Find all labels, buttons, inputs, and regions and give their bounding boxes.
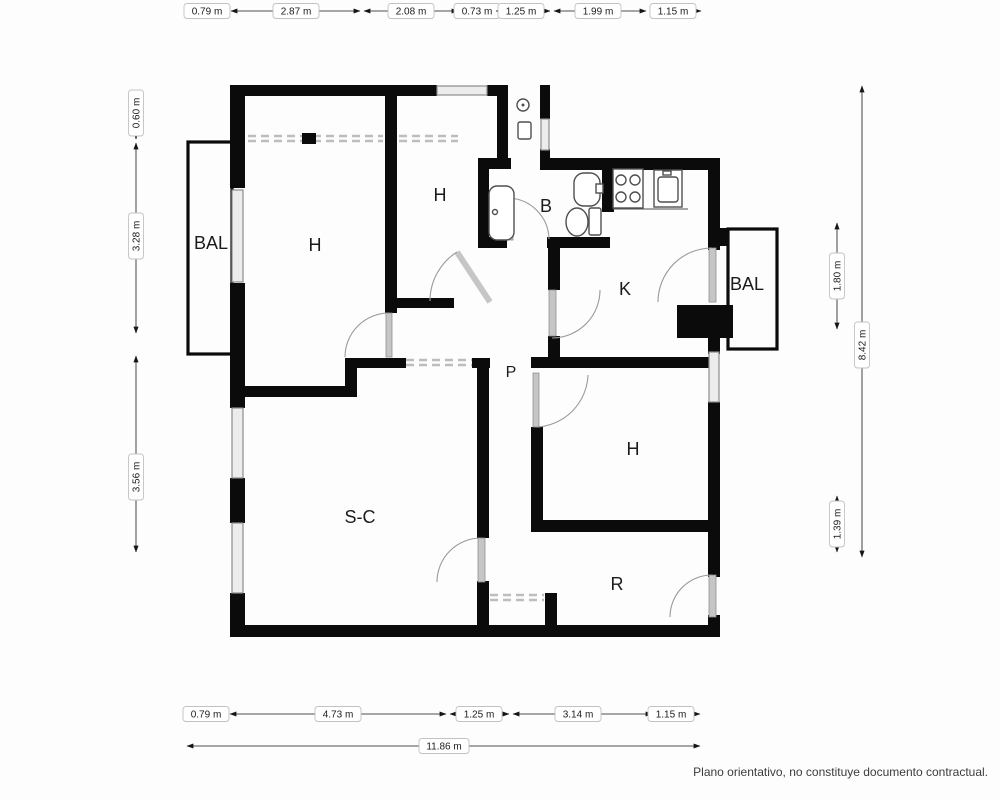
door-room-r	[709, 575, 716, 617]
dim-label: 8.42 m	[858, 330, 869, 361]
kitchen-sink-basin	[658, 177, 678, 202]
wardrobe-dash	[399, 136, 458, 141]
burner	[630, 192, 640, 202]
dim-label: 1.99 m	[583, 7, 614, 18]
door-bedroom2-leaf	[457, 252, 490, 302]
dim-label: 1.80 m	[833, 261, 844, 292]
dimensions-top: 0.79 m 2.87 m 2.08 m 0.73 m 1.25 m 1.99 …	[184, 4, 701, 19]
door-swing-arc	[536, 375, 588, 427]
dim-label: 11.86 m	[426, 742, 461, 753]
door-kitchen	[549, 290, 556, 336]
toilet-icon	[566, 208, 588, 236]
dim-label: 3.56 m	[132, 462, 143, 493]
wall	[545, 593, 557, 625]
window-icon	[232, 523, 243, 593]
disclaimer-text: Plano orientativo, no constituye documen…	[693, 765, 988, 779]
wall	[540, 85, 550, 119]
balcony-door-icon	[232, 190, 243, 282]
wall	[531, 427, 543, 522]
floor-plan-page: BAL H H B K BAL P H S-C R 0.79 m 2.87 m …	[0, 0, 1000, 800]
wall	[602, 165, 614, 212]
wall	[478, 158, 489, 248]
wall	[477, 581, 489, 625]
burner	[616, 175, 626, 185]
dim-label: 3.28 m	[132, 221, 143, 252]
shower-head-dot	[522, 104, 525, 107]
room-label-bedroom-2: H	[434, 185, 447, 205]
wall	[230, 386, 357, 397]
room-label-balcony-right: BAL	[730, 274, 764, 294]
washbasin-tap	[596, 184, 603, 193]
wall	[497, 85, 508, 169]
burner	[630, 175, 640, 185]
burner	[616, 192, 626, 202]
wall	[531, 357, 709, 368]
dimensions-left: 0.60 m 3.28 m 3.56 m	[129, 90, 144, 552]
room-label-hallway: P	[506, 364, 517, 381]
wall	[548, 336, 560, 358]
wall	[230, 85, 245, 188]
dim-label: 0.79 m	[191, 710, 222, 721]
door-swing-arc	[430, 252, 457, 301]
door-bedroom3	[533, 373, 539, 427]
wall	[708, 228, 727, 246]
wall	[540, 158, 720, 170]
wall	[531, 520, 720, 532]
window-icon	[232, 408, 243, 478]
room-label-bathroom: B	[540, 196, 552, 216]
wall	[397, 298, 454, 308]
dim-label: 3.14 m	[563, 710, 594, 721]
wall	[677, 305, 733, 338]
dim-label: 0.79 m	[192, 7, 223, 18]
window-icon	[541, 119, 549, 150]
dim-label: 2.87 m	[281, 7, 312, 18]
wall	[477, 368, 489, 538]
dim-label: 0.73 m	[462, 7, 493, 18]
window-icon	[437, 86, 487, 95]
wall	[350, 358, 406, 368]
window-icon	[709, 352, 719, 402]
door-kitchen-balcony	[709, 248, 716, 302]
wall	[708, 522, 720, 577]
door-swing-arc	[670, 575, 712, 617]
doors	[345, 198, 716, 617]
wall	[230, 85, 437, 96]
wall	[230, 478, 245, 523]
wall	[548, 242, 560, 290]
dim-label: 1.39 m	[833, 509, 844, 540]
dim-label: 1.15 m	[658, 7, 689, 18]
door-bedroom1	[386, 313, 392, 357]
door-swing-arc	[552, 290, 600, 338]
door-living	[478, 538, 485, 582]
room-label-bedroom-3: H	[627, 439, 640, 459]
floor-plan: BAL H H B K BAL P H S-C R 0.79 m 2.87 m …	[0, 0, 1000, 800]
shower-control	[518, 122, 531, 139]
door-swing-arc	[345, 313, 389, 357]
wall	[385, 95, 397, 313]
room-label-kitchen: K	[619, 279, 631, 299]
door-swing-arc	[437, 538, 481, 582]
opening-dash	[490, 595, 544, 600]
dim-label: 1.15 m	[656, 710, 687, 721]
dim-label: 1.25 m	[506, 7, 537, 18]
room-label-room-r: R	[611, 574, 624, 594]
dimensions-bottom: 0.79 m 4.73 m 1.25 m 3.14 m 1.15 m 11.86…	[183, 707, 700, 754]
room-label-bedroom-1: H	[309, 235, 322, 255]
door-swing-arc	[658, 248, 712, 302]
toilet-tank	[589, 208, 601, 235]
stove-icon	[613, 169, 643, 208]
wardrobe-pier	[302, 133, 316, 144]
kitchen-sink-tap	[663, 171, 671, 175]
wall	[230, 625, 720, 637]
room-label-living-dining: S-C	[345, 507, 376, 527]
room-label-balcony-left: BAL	[194, 233, 228, 253]
dim-label: 0.60 m	[132, 98, 143, 129]
wall	[708, 402, 720, 522]
dim-label: 4.73 m	[323, 710, 354, 721]
dim-label: 1.25 m	[464, 710, 495, 721]
dimensions-right: 1.80 m 1.39 m 8.42 m	[830, 86, 870, 557]
wall	[472, 358, 490, 368]
bathtub-drain	[493, 210, 498, 215]
opening-dash	[406, 360, 472, 365]
dim-label: 2.08 m	[396, 7, 427, 18]
wall	[708, 615, 720, 637]
